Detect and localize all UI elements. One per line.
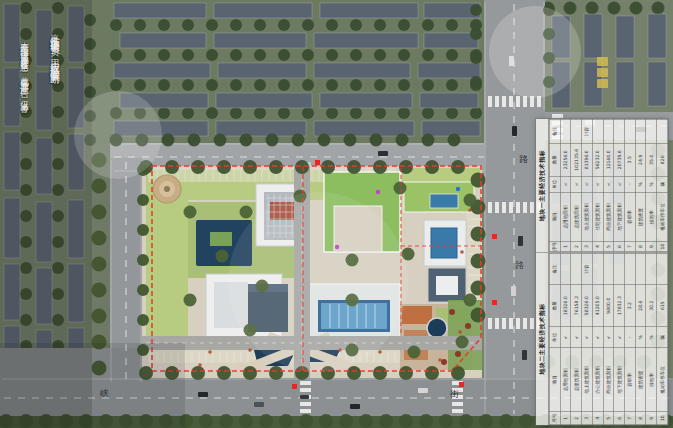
yellow-watermark-label	[597, 57, 608, 88]
indicator-table-wrapper: 地块二主要经济技术指标序号项目单位数量备注1总用地面积㎡18326.02总建筑面…	[536, 119, 668, 425]
road-label-xia: 峡	[100, 389, 109, 398]
indicator-table-section-1: 地块一主要经济技术指标序号项目单位数量备注1总用地面积㎡23256.02总建筑面…	[536, 119, 668, 252]
road-label-lu-north: 路	[519, 155, 528, 164]
indicator-table-grid: 序号项目单位数量备注1总用地面积㎡18326.02总建筑面积㎡76158.33地…	[549, 253, 668, 425]
indicator-table-title: 地块一主要经济技术指标	[536, 119, 549, 252]
road-label-lu-south: 路	[515, 261, 524, 270]
indicator-table-title: 地块二主要经济技术指标	[536, 253, 549, 425]
indicator-table-grid: 序号项目单位数量备注1总用地面积㎡23256.02总建筑面积㎡102135.63…	[549, 119, 668, 252]
master-plan-image: 真实性由提供者负责，用户应依据经验审慎判断 本网站无偿提供房地产类楼盘信息，此类…	[0, 0, 673, 428]
road-label-jie: 街	[450, 390, 459, 399]
watermark-column-right: 真实性由提供者负责，用户应依据经验审慎判断	[48, 26, 61, 69]
indicator-table: 地块二主要经济技术指标序号项目单位数量备注1总用地面积㎡18326.02总建筑面…	[536, 119, 668, 425]
indicator-table-section-2: 地块二主要经济技术指标序号项目单位数量备注1总用地面积㎡18326.02总建筑面…	[536, 252, 668, 425]
watermark-column-left: 本网站无偿提供房地产类楼盘信息，此类信息非商业广告，仅供参考	[19, 35, 31, 100]
